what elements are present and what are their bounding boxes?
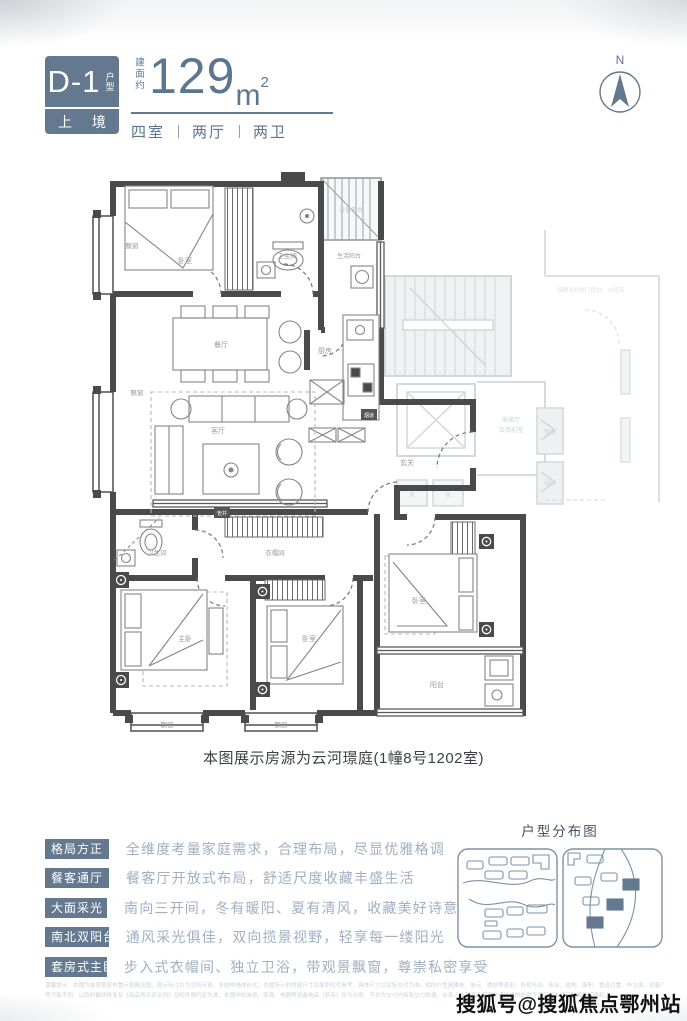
room-label: 飘窗 <box>126 241 139 250</box>
floorplan-caption: 本图展示房源为云河璟庭(1幢8号1202室) <box>0 747 687 768</box>
baths-count: 两卫 <box>253 121 287 142</box>
room-label: 设备平台 <box>339 206 363 214</box>
highlighted-building <box>587 917 603 928</box>
master-bed <box>121 590 227 686</box>
room-label: 玄关 <box>400 458 414 467</box>
feature-list: 格局方正 全维度考量家庭需求，合理布局，尽显优雅格调 餐客通厅 餐客厅开放式布局… <box>45 838 445 986</box>
room-label: 卧室 <box>178 256 192 265</box>
feature-desc: 全维度考量家庭需求，合理布局，尽显优雅格调 <box>126 839 445 859</box>
rooms-separator <box>239 125 240 138</box>
unit-type-badge-top: D-1 户型 <box>45 56 119 107</box>
watermark-text: 搜狐号@搜狐焦点鄂州站 <box>456 988 681 1017</box>
area-unit: m2 <box>235 68 268 111</box>
room-label: 飘窗 <box>275 720 288 729</box>
area-value: 129 <box>149 48 235 104</box>
neighbor-unit-outline <box>545 230 659 502</box>
living-room-sofa-set <box>151 392 315 516</box>
brand-label: 上 境 <box>45 109 119 134</box>
room-label: 水 <box>445 491 451 499</box>
balcony-fixtures <box>485 656 513 706</box>
sitemap-left-buildings <box>463 855 555 939</box>
area-block: 建面约 129 m2 <box>131 48 269 111</box>
halls-count: 两厅 <box>192 121 226 142</box>
bedroom2-bed <box>267 606 343 684</box>
room-label: 管井 <box>217 510 227 517</box>
dining-table <box>173 306 301 382</box>
highlighted-building <box>607 899 623 910</box>
rooms-count: 四室 <box>131 121 165 142</box>
room-label: 合用前室 <box>499 426 524 434</box>
feature-tag: 套房式主卧 <box>45 957 107 977</box>
north-compass: N <box>594 52 646 118</box>
feature-tag: 格局方正 <box>45 839 109 859</box>
room-label: 飘窗 <box>161 720 174 729</box>
north-label: N <box>616 53 625 67</box>
north-arrow-icon <box>611 74 629 107</box>
bathroom-lower-fixtures <box>115 518 162 566</box>
room-label: 餐厅 <box>214 340 228 349</box>
room-label: 飘窗 <box>131 388 144 397</box>
stairs-rail <box>403 320 493 330</box>
sitemap-title: 户型分布图 <box>455 820 665 840</box>
room-label: 卫生间 <box>277 251 297 260</box>
feature-desc: 通风采光俱佳，双向揽景视野，轻享每一缕阳光 <box>126 927 445 947</box>
wall-protrusion <box>281 172 305 184</box>
kitchen-counter <box>343 315 379 420</box>
sitemap-right-panel <box>563 849 662 947</box>
feature-row: 套房式主卧 步入式衣帽间、独立卫浴，带观景飘窗，尊崇私密享受 <box>45 956 445 977</box>
room-label: 烟道 <box>364 412 374 419</box>
feature-row: 大面采光 南向三开间，冬有暖阳、夏有清风，收藏美好诗意 <box>45 897 445 918</box>
feature-desc: 南向三开间，冬有暖阳、夏有清风，收藏美好诗意 <box>124 898 458 918</box>
feature-row: 南北双阳台 通风采光俱佳，双向揽景视野，轻享每一缕阳光 <box>45 927 445 948</box>
room-label: 电梯厅 <box>502 416 521 424</box>
room-label: 主卧 <box>178 634 192 643</box>
unit-type-badge: D-1 户型 上 境 <box>45 56 119 134</box>
area-prefix-label: 建面约 <box>131 57 145 92</box>
sitemap-panels <box>455 843 665 955</box>
room-label: 厨房 <box>318 346 332 355</box>
common-core <box>385 230 659 506</box>
rooms-separator <box>178 125 179 138</box>
service-balcony-fixture <box>351 266 373 288</box>
feature-desc: 步入式衣帽间、独立卫浴，带观景飘窗，尊崇私密享受 <box>124 957 489 977</box>
area-superscript: 2 <box>260 74 268 91</box>
bedroom3-bed <box>385 554 477 634</box>
room-label: 风 <box>409 492 415 499</box>
sitemap-right-buildings <box>568 849 639 947</box>
feature-desc: 餐客厅开放式布局，舒适尺度收藏丰盛生活 <box>126 868 415 888</box>
room-label: 卫生间 <box>147 548 167 557</box>
feature-tag: 大面采光 <box>45 898 107 918</box>
header-divider <box>131 112 333 114</box>
room-label: 卧室 <box>302 634 316 643</box>
room-label: 衣帽间 <box>265 548 285 557</box>
floorplan-flyer-page: { "header": { "model": "D-1", "model_suf… <box>0 0 687 1021</box>
room-label: 强电 <box>544 428 556 436</box>
bed-top-bedroom <box>125 186 213 270</box>
unit-model-suffix: 户型 <box>103 72 116 92</box>
room-label: 阳台 <box>430 680 444 689</box>
feature-tag: 餐客通厅 <box>45 868 109 888</box>
room-label: 生活阳台 <box>337 252 361 260</box>
feature-tag: 南北双阳台 <box>45 927 109 947</box>
room-label: 弱电 <box>544 479 556 487</box>
floorplan-drawing: 飘窗卧室卫生间生活阳台设备平台餐厅厨房飘窗客厅玄关烟道管井卫生间衣帽间主卧卧室卧… <box>85 170 665 744</box>
room-label: 卧室 <box>412 596 426 605</box>
room-label: 疏散及检修门仅12、15层有 <box>557 286 625 294</box>
feature-row: 格局方正 全维度考量家庭需求，合理布局，尽显优雅格调 <box>45 838 445 859</box>
room-label: 客厅 <box>211 426 225 435</box>
unit-model-label: D-1 <box>48 66 101 97</box>
rooms-summary: 四室 两厅 两卫 <box>131 121 287 142</box>
bathroom-top-fixtures <box>257 209 314 278</box>
feature-row: 餐客通厅 餐客厅开放式布局，舒适尺度收藏丰盛生活 <box>45 868 445 889</box>
highlighted-building <box>623 879 639 890</box>
